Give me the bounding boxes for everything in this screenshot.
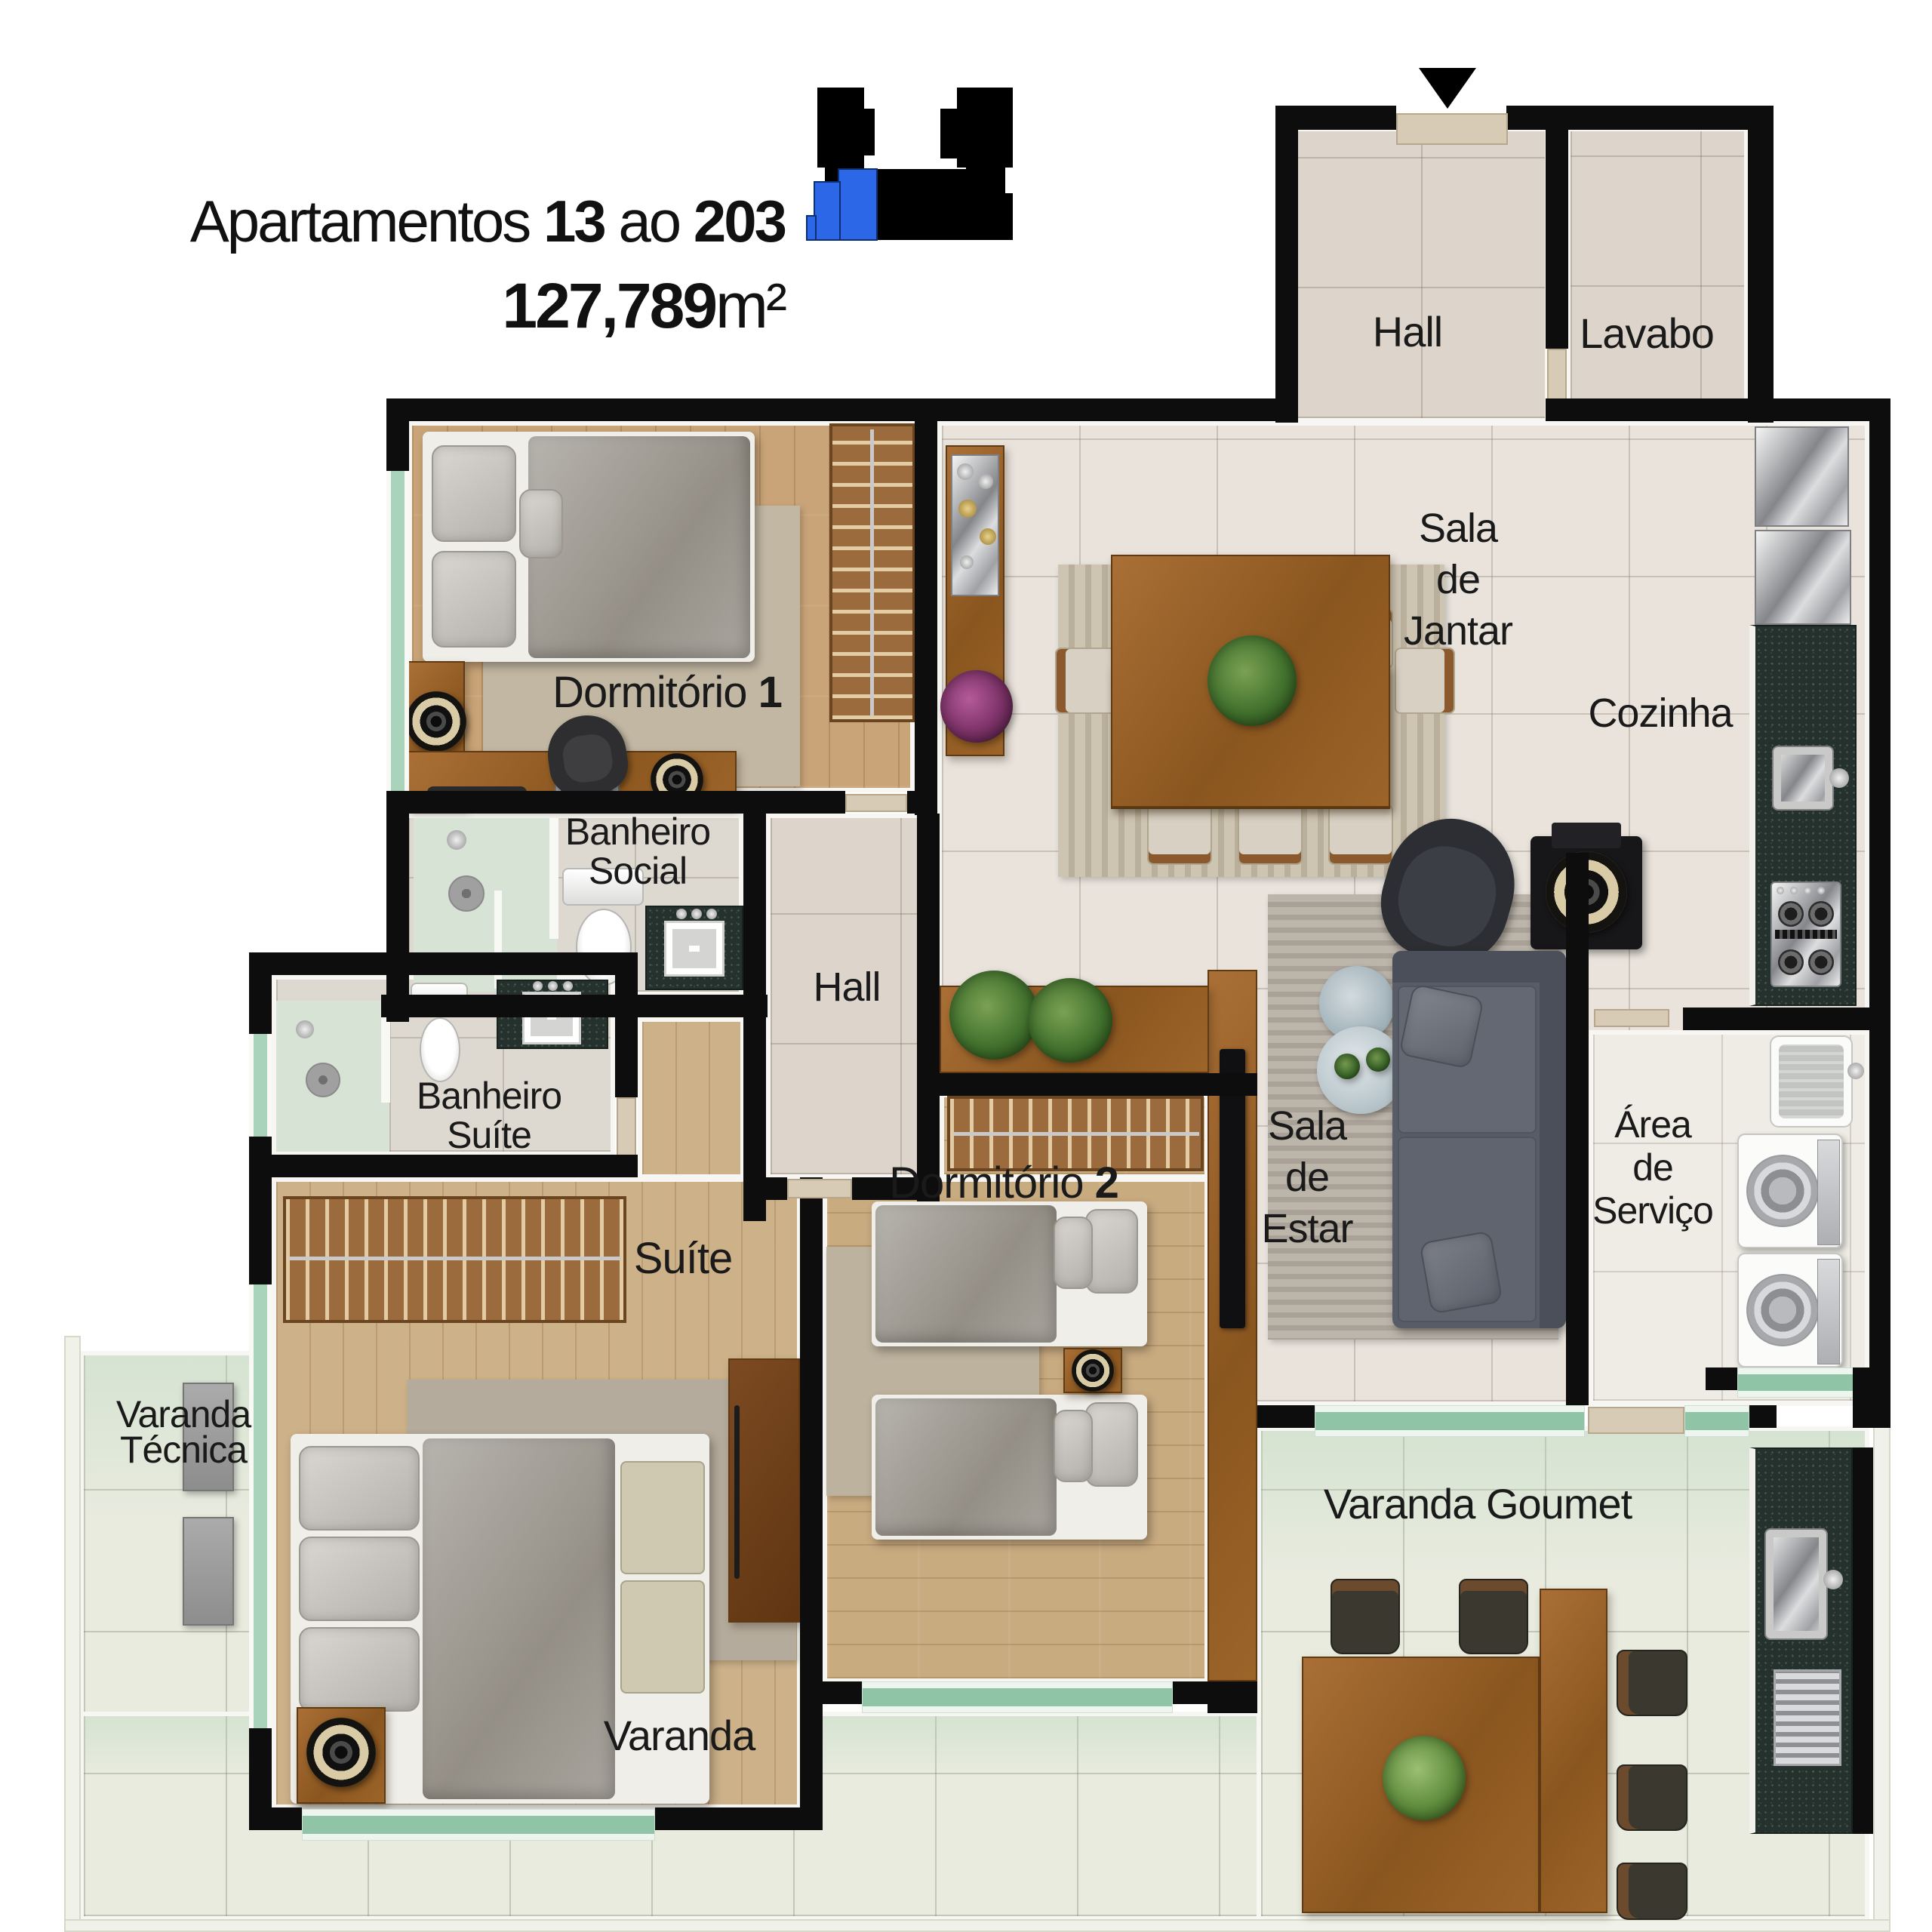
suite-ottoman: [620, 1461, 705, 1574]
room-label-area-servico-1: Área: [1614, 1106, 1691, 1143]
glassware: [978, 474, 993, 489]
stove-knob: [1804, 887, 1811, 894]
dorm2-speaker: [1072, 1349, 1114, 1392]
room-label-banheiro-social-1: Banheiro: [565, 813, 710, 851]
page-title: Apartamentos 13 ao 203 127,789m²: [106, 187, 785, 343]
dorm2-pillow: [1054, 1217, 1093, 1289]
wall: [1257, 1405, 1315, 1428]
suite-corridor-floor: [638, 1017, 745, 1179]
wall: [1706, 1367, 1737, 1390]
dorm1-door: [845, 794, 907, 812]
wall: [1546, 398, 1774, 421]
stove-burner: [1778, 901, 1804, 927]
coffee-table-plant: [1334, 1054, 1360, 1079]
suite-ottoman: [620, 1580, 705, 1694]
wall: [249, 1155, 638, 1177]
room-label-varanda-tecnica-2: Técnica: [120, 1431, 247, 1469]
gourmet-door: [1588, 1407, 1684, 1434]
faucet: [533, 981, 543, 991]
wall: [1275, 106, 1298, 423]
suite-duvet: [423, 1438, 615, 1799]
stove-knob: [1790, 887, 1798, 894]
room-label-area-servico-3: Serviço: [1592, 1192, 1713, 1229]
sofa-pillow: [1419, 1230, 1503, 1314]
glassware: [958, 500, 977, 518]
room-label-sala-estar-1: Sala: [1268, 1106, 1346, 1146]
wall: [1506, 106, 1774, 130]
faucet: [676, 909, 687, 919]
refrigerator: [1755, 530, 1851, 625]
dorm1-pillow: [432, 551, 516, 648]
wall: [940, 1073, 1257, 1096]
wall: [1207, 1681, 1257, 1713]
wall: [249, 1807, 302, 1830]
sofa-armrest: [1392, 951, 1540, 983]
building-keyplan-icon: [806, 82, 1078, 308]
sofa-backrest: [1540, 951, 1566, 1328]
sliding-door: [1315, 1405, 1585, 1437]
wall: [1566, 853, 1589, 1405]
wall: [1749, 1405, 1777, 1428]
suite-bath-door: [617, 1097, 636, 1164]
glassware: [980, 528, 996, 545]
room-label-lavabo: Lavabo: [1580, 312, 1714, 355]
washer-drum: [1746, 1274, 1819, 1346]
dining-chair: [1147, 804, 1212, 865]
dorm2-pillow: [1054, 1410, 1093, 1482]
gourmet-chair: [1459, 1579, 1528, 1654]
wall: [386, 398, 409, 471]
wall: [386, 398, 1298, 421]
wardrobe-handle: [734, 1405, 740, 1579]
suite-toilet-bowl: [420, 1017, 460, 1082]
shower-head: [296, 1020, 314, 1038]
room-label-cozinha: Cozinha: [1588, 693, 1732, 734]
closet-rail: [289, 1257, 621, 1260]
kitchen-faucet: [1829, 768, 1849, 788]
sideboard-plant: [949, 971, 1038, 1060]
washing-machine: [1737, 1253, 1843, 1367]
wall: [1683, 1008, 1869, 1030]
dorm2-duvet: [875, 1398, 1057, 1536]
entry-hall-floor: [1287, 127, 1549, 423]
dorm1-closet: [829, 423, 915, 722]
window: [249, 1284, 272, 1728]
kitchen-sink: [1772, 746, 1834, 811]
suite-pillow: [299, 1446, 420, 1531]
wall: [249, 975, 272, 1034]
dorm1-speaker: [406, 691, 466, 752]
wall: [655, 1807, 823, 1830]
gourmet-chair: [1331, 1579, 1400, 1654]
glassware: [960, 555, 974, 569]
stove-burner: [1808, 901, 1834, 927]
floor-plan-canvas: Apartamentos 13 ao 203 127,789m²: [0, 0, 1932, 1932]
room-label-sala-jantar-1: Sala: [1419, 508, 1497, 549]
dining-chair: [1328, 804, 1393, 865]
wall: [800, 1177, 823, 1830]
dining-chair: [1055, 648, 1115, 714]
stove-knob: [1817, 887, 1825, 894]
gourmet-bench: [1540, 1589, 1607, 1913]
wall: [1748, 106, 1774, 423]
room-label-sala-estar-2: de: [1285, 1157, 1329, 1198]
sliding-door: [302, 1809, 655, 1841]
wall: [1869, 1010, 1890, 1367]
glassware: [957, 463, 974, 480]
faucet: [706, 909, 717, 919]
room-label-suite: Suíte: [634, 1237, 732, 1281]
suite-wardrobe: [728, 1358, 800, 1623]
entry-door: [1396, 113, 1508, 145]
wall: [1853, 1367, 1890, 1428]
room-label-banheiro-suite-2: Suíte: [447, 1116, 531, 1154]
varanda-railing-left: [64, 1336, 81, 1921]
room-label-sala-jantar-2: de: [1436, 559, 1480, 600]
refrigerator: [1755, 426, 1849, 527]
room-label-varanda: Varanda: [604, 1715, 755, 1757]
office-chair-seat: [561, 732, 615, 785]
laundry-tub: [1770, 1035, 1853, 1128]
shower-drain: [306, 1063, 340, 1097]
armchair-cushion: [1388, 836, 1506, 957]
gourmet-sink: [1764, 1528, 1828, 1640]
washer-panel: [1817, 1259, 1840, 1364]
barbecue-grill: [1774, 1669, 1841, 1766]
stove-burner: [1808, 949, 1834, 975]
faucet: [691, 909, 702, 919]
dining-chair: [1395, 648, 1455, 714]
wall: [743, 814, 766, 1221]
dining-chair: [1238, 804, 1303, 865]
dorm2-duvet: [875, 1205, 1057, 1343]
table-centerpiece-plant: [1207, 635, 1297, 726]
room-label-banheiro-suite-1: Banheiro: [417, 1077, 561, 1115]
shower-drain: [448, 875, 485, 912]
gourmet-counter: [1749, 1447, 1853, 1834]
suite-pillow: [299, 1537, 420, 1621]
social-shower-glass: [549, 818, 558, 939]
service-door: [1594, 1009, 1669, 1027]
room-label-varanda-tecnica-1: Varanda: [116, 1395, 251, 1433]
room-label-banheiro-social-2: Social: [589, 852, 687, 890]
apartment-title: Apartamentos 13 ao 203: [106, 187, 785, 256]
wall: [386, 795, 409, 1022]
faucet: [548, 981, 558, 991]
social-bath-sink: [664, 921, 724, 977]
tub-basin: [1779, 1044, 1844, 1118]
suite-pillow: [299, 1627, 420, 1712]
tub-faucet: [1847, 1063, 1864, 1079]
gourmet-chair: [1617, 1764, 1687, 1831]
lavabo-floor: [1566, 127, 1749, 421]
wall: [249, 1177, 272, 1284]
window: [386, 471, 409, 795]
room-label-hall-entry: Hall: [1373, 311, 1442, 353]
sofa-pillow: [1398, 983, 1484, 1069]
gourmet-chair: [1617, 1650, 1687, 1716]
room-label-dormitorio2: Dormitório 2: [889, 1161, 1118, 1205]
wall: [249, 952, 638, 975]
stove-knob: [1777, 887, 1784, 894]
sliding-door: [1684, 1405, 1749, 1437]
gourmet-faucet: [1823, 1570, 1843, 1589]
dorm2-pillow: [1085, 1209, 1138, 1294]
wall: [1173, 1681, 1207, 1704]
wall: [1774, 398, 1869, 421]
varanda-railing-bottom: [64, 1919, 1890, 1932]
wall: [1869, 398, 1890, 1010]
room-label-sala-estar-3: Estar: [1261, 1208, 1352, 1249]
shower-head: [447, 830, 466, 850]
entry-arrow-icon: [1419, 68, 1476, 109]
wall: [1546, 130, 1568, 349]
wall: [823, 1681, 862, 1704]
window: [249, 1034, 272, 1137]
wall: [915, 421, 937, 815]
wall: [917, 814, 940, 1201]
gourmet-table-plant: [1383, 1736, 1466, 1820]
coffee-table-plant: [1366, 1048, 1390, 1072]
varanda-railing-right: [1873, 1426, 1890, 1921]
room-label-dormitorio1: Dormitório 1: [552, 671, 782, 715]
dorm1-pillow: [519, 489, 563, 558]
dorm2-pillow: [1085, 1402, 1138, 1487]
closet-rail: [953, 1132, 1199, 1136]
room-label-varanda-goumet: Varanda Goumet: [1324, 1483, 1632, 1525]
buffet-flowers: [940, 670, 1013, 743]
suite-speaker: [306, 1718, 376, 1787]
speaker-cabinet-top: [1552, 823, 1621, 848]
apartment-area: 127,789m²: [106, 269, 785, 343]
room-label-hall-interno: Hall: [813, 967, 880, 1008]
sliding-door: [1737, 1367, 1854, 1398]
coffee-table: [1317, 1026, 1404, 1114]
sliding-door: [862, 1681, 1173, 1713]
wall: [615, 975, 638, 1097]
wall: [743, 1177, 787, 1200]
suite-door: [787, 1179, 852, 1198]
room-label-area-servico-2: de: [1632, 1149, 1673, 1186]
dorm1-pillow: [432, 445, 516, 542]
stove-grate: [1775, 930, 1837, 939]
sideboard-plant: [1028, 978, 1112, 1063]
wall: [381, 995, 768, 1017]
washer-panel: [1817, 1140, 1840, 1245]
washer-drum: [1746, 1155, 1819, 1227]
suite-closet: [283, 1196, 626, 1323]
stove-burner: [1778, 949, 1804, 975]
cooktop-stove: [1770, 881, 1841, 987]
faucet: [563, 981, 573, 991]
closet-rail: [870, 429, 874, 716]
wall: [1853, 1447, 1873, 1834]
gourmet-chair: [1617, 1863, 1687, 1920]
room-label-sala-jantar-3: Jantar: [1404, 611, 1512, 651]
ac-condenser: [183, 1517, 234, 1626]
washing-machine: [1737, 1134, 1843, 1248]
